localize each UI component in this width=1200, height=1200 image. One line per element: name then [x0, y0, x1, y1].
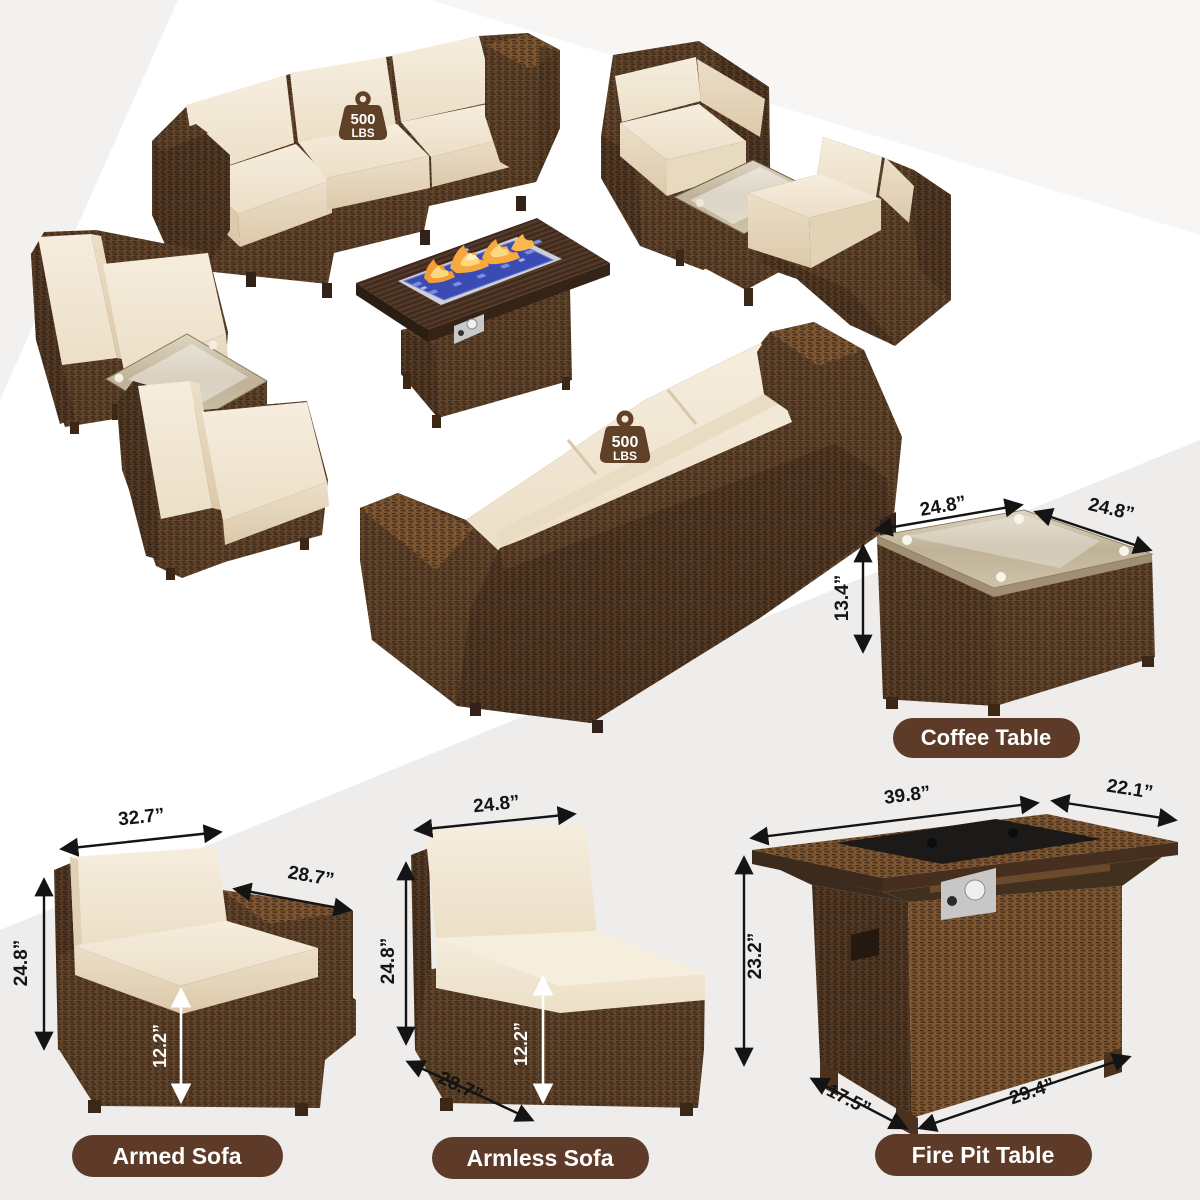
svg-text:Armless Sofa: Armless Sofa: [466, 1145, 613, 1171]
svg-text:Fire Pit Table: Fire Pit Table: [912, 1142, 1055, 1168]
svg-text:12.2”: 12.2”: [511, 1022, 531, 1066]
svg-text:500: 500: [350, 111, 375, 128]
svg-text:Coffee Table: Coffee Table: [921, 725, 1051, 750]
svg-text:13.4”: 13.4”: [832, 575, 853, 621]
svg-text:23.2”: 23.2”: [745, 933, 766, 979]
svg-text:LBS: LBS: [352, 128, 375, 140]
svg-text:Armed Sofa: Armed Sofa: [112, 1143, 241, 1169]
svg-text:12.2”: 12.2”: [150, 1024, 170, 1068]
svg-text:LBS: LBS: [613, 449, 637, 463]
svg-text:24.8”: 24.8”: [11, 940, 32, 986]
svg-text:24.8”: 24.8”: [378, 938, 399, 984]
